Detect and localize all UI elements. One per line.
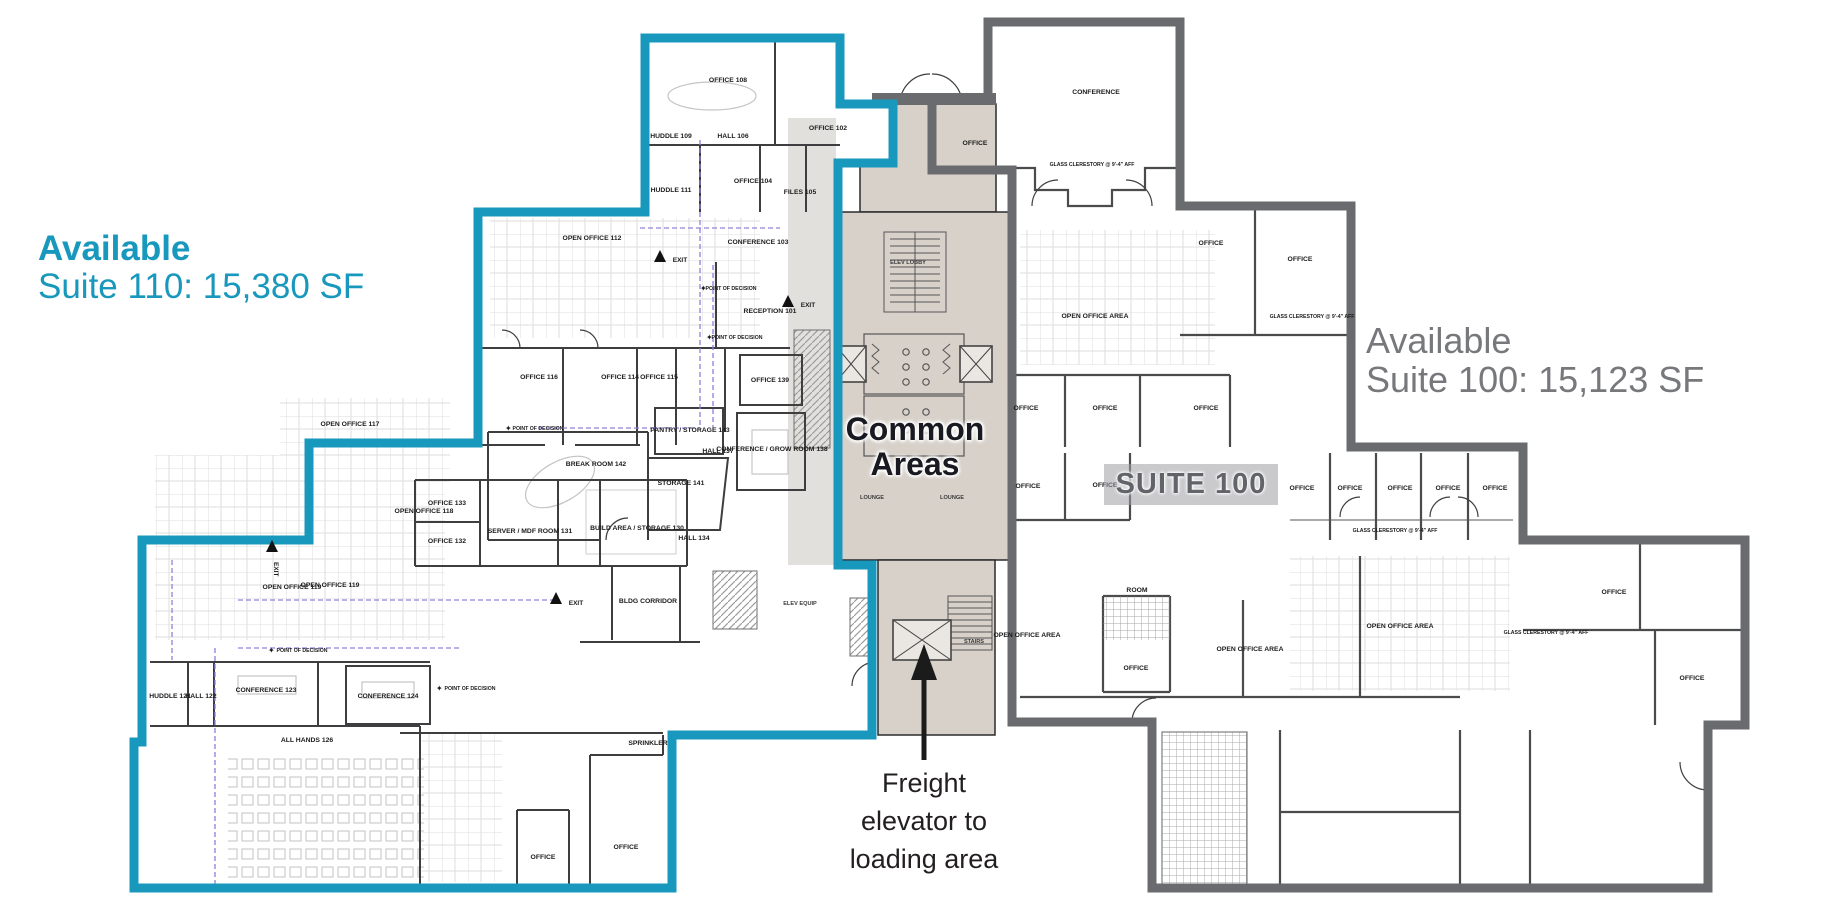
room-label: OFFICE <box>1388 485 1413 492</box>
exit-label: EXIT <box>801 302 815 309</box>
room-label: SPRINKLER <box>628 740 667 747</box>
room-label: OFFICE 116 <box>520 374 558 381</box>
exit-label: EXIT <box>569 600 583 607</box>
room-label: OFFICE <box>1602 589 1627 596</box>
floor-plan-page: EXIT EXIT EXIT EXIT ✦ POINT OF DECISION … <box>0 0 1827 915</box>
suite100-availability-callout: Available Suite 100: 15,123 SF <box>1366 322 1806 400</box>
room-label: CONFERENCE 123 <box>236 687 297 694</box>
pod-label: POINT OF DECISION <box>444 686 495 692</box>
pod-label: POINT OF DECISION <box>711 335 762 341</box>
room-label: STAIRS <box>964 639 984 645</box>
room-label: OPEN OFFICE AREA <box>1062 313 1129 320</box>
suite110-size-subtitle: Suite 110: 15,380 SF <box>38 268 478 306</box>
room-label: OFFICE <box>531 854 556 861</box>
room-label: CONFERENCE 124 <box>358 693 419 700</box>
pod-star-icon: ✦ <box>268 646 275 655</box>
common-areas-line1: Common <box>775 412 1055 447</box>
suite110-availability-callout: Available Suite 110: 15,380 SF <box>38 230 478 306</box>
room-label: OFFICE <box>1194 405 1219 412</box>
elevator-shaft <box>960 346 992 382</box>
room-label: OPEN OFFICE AREA <box>1217 646 1284 653</box>
room-label: ELEV EQUIP <box>783 601 817 607</box>
room-label: STORAGE 141 <box>658 480 705 487</box>
room-label: ALL HANDS 126 <box>281 737 334 744</box>
freight-note-line3: loading area <box>793 840 1055 878</box>
pod-label: POINT OF DECISION <box>276 648 327 654</box>
room-label: OPEN OFFICE 112 <box>563 235 622 242</box>
room-label: HALL 106 <box>717 133 748 140</box>
pod-label: POINT OF DECISION <box>705 286 756 292</box>
room-label: FILES 105 <box>784 189 817 196</box>
room-label: OPEN OFFICE 117 <box>321 421 380 428</box>
room-label: OFFICE <box>1016 483 1041 490</box>
room-label: LOUNGE <box>860 495 884 501</box>
pod-star-icon: ✦ <box>505 424 512 433</box>
room-label: OFFICE 139 <box>751 377 789 384</box>
room-label: CONFERENCE 103 <box>728 239 789 246</box>
freight-note-line2: elevator to <box>793 802 1055 840</box>
room-label: BLDG CORRIDOR <box>619 598 677 605</box>
room-label: OFFICE 108 <box>709 77 747 84</box>
room-label: OFFICE <box>1290 485 1315 492</box>
freight-note-line1: Freight <box>793 764 1055 802</box>
room-label: LOUNGE <box>940 495 964 501</box>
room-label: SERVER / MDF ROOM 131 <box>488 528 573 535</box>
service-shaft-hatched <box>1162 732 1247 886</box>
room-label: CONFERENCE <box>1072 89 1120 96</box>
room-label: OPEN OFFICE AREA <box>1367 623 1434 630</box>
room-label: OFFICE 115 <box>640 374 678 381</box>
room-label: OFFICE <box>1014 405 1039 412</box>
room-label: OFFICE <box>1436 485 1461 492</box>
room-label: HALL 134 <box>678 535 709 542</box>
room-label: OFFICE 104 <box>734 178 772 185</box>
exit-label: EXIT <box>272 562 279 576</box>
glass-note: GLASS CLERESTORY @ 9'-4" AFF <box>1270 314 1355 320</box>
room-label: OFFICE 133 <box>428 500 466 507</box>
suite100-size-subtitle: Suite 100: 15,123 SF <box>1366 361 1806 400</box>
room-label: OFFICE <box>614 844 639 851</box>
room-label: OFFICE <box>1288 256 1313 263</box>
glass-note: GLASS CLERESTORY @ 9'-4" AFF <box>1504 630 1589 636</box>
room-label: OFFICE <box>1124 665 1149 672</box>
room-label: OFFICE <box>1093 405 1118 412</box>
freight-elevator-note: Freight elevator to loading area <box>793 764 1055 878</box>
room-label: OPEN OFFICE AREA <box>994 632 1061 639</box>
room-label: OFFICE <box>1199 240 1224 247</box>
room-label: OFFICE 132 <box>428 538 466 545</box>
room-label: OFFICE <box>1680 675 1705 682</box>
common-areas-callout: Common Areas <box>775 412 1055 482</box>
pod-star-icon: ✦ <box>436 684 443 693</box>
room-label: OFFICE 102 <box>809 125 847 132</box>
room-label: OFFICE 114 <box>601 374 639 381</box>
room-label: OFFICE <box>963 140 988 147</box>
room-label: HALL 122 <box>185 693 216 700</box>
room-label: ELEV LOBBY <box>890 260 926 266</box>
room-label: HUDDLE 109 <box>650 133 692 140</box>
room-label: PANTRY / STORAGE 143 <box>650 427 730 434</box>
room-label: HUDDLE 111 <box>651 187 692 194</box>
exit-arrow-icon <box>550 592 562 604</box>
common-areas-line2: Areas <box>775 447 1055 482</box>
room-grid-floor <box>1103 596 1170 640</box>
room-label: OFFICE <box>1483 485 1508 492</box>
room-label: OPEN OFFICE 119 <box>301 582 360 589</box>
room-label: OFFICE <box>1338 485 1363 492</box>
glass-note: GLASS CLERESTORY @ 9'-4" AFF <box>1050 162 1135 168</box>
suite110-available-title: Available <box>38 230 478 268</box>
exit-label: EXIT <box>673 257 687 264</box>
room-label: BREAK ROOM 142 <box>566 461 627 468</box>
suite100-badge: SUITE 100 <box>1104 464 1278 505</box>
room-label: OPEN OFFICE 118 <box>395 508 454 515</box>
room-label: BUILD AREA / STORAGE 130 <box>590 525 684 532</box>
room-label: ROOM <box>1126 587 1147 594</box>
room-label: RECEPTION 101 <box>744 308 797 315</box>
suite100-available-title: Available <box>1366 322 1806 361</box>
pod-label: POINT OF DECISION <box>512 426 563 432</box>
glass-note: GLASS CLERESTORY @ 9'-4" AFF <box>1353 528 1438 534</box>
all-hands-seating <box>228 752 424 880</box>
